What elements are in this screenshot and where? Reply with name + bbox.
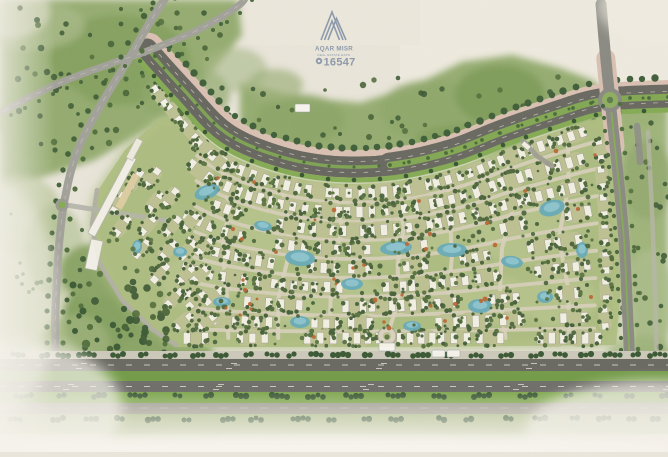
- svg-text:16547: 16547: [324, 57, 356, 69]
- svg-text:AQAR MISR: AQAR MISR: [315, 46, 353, 53]
